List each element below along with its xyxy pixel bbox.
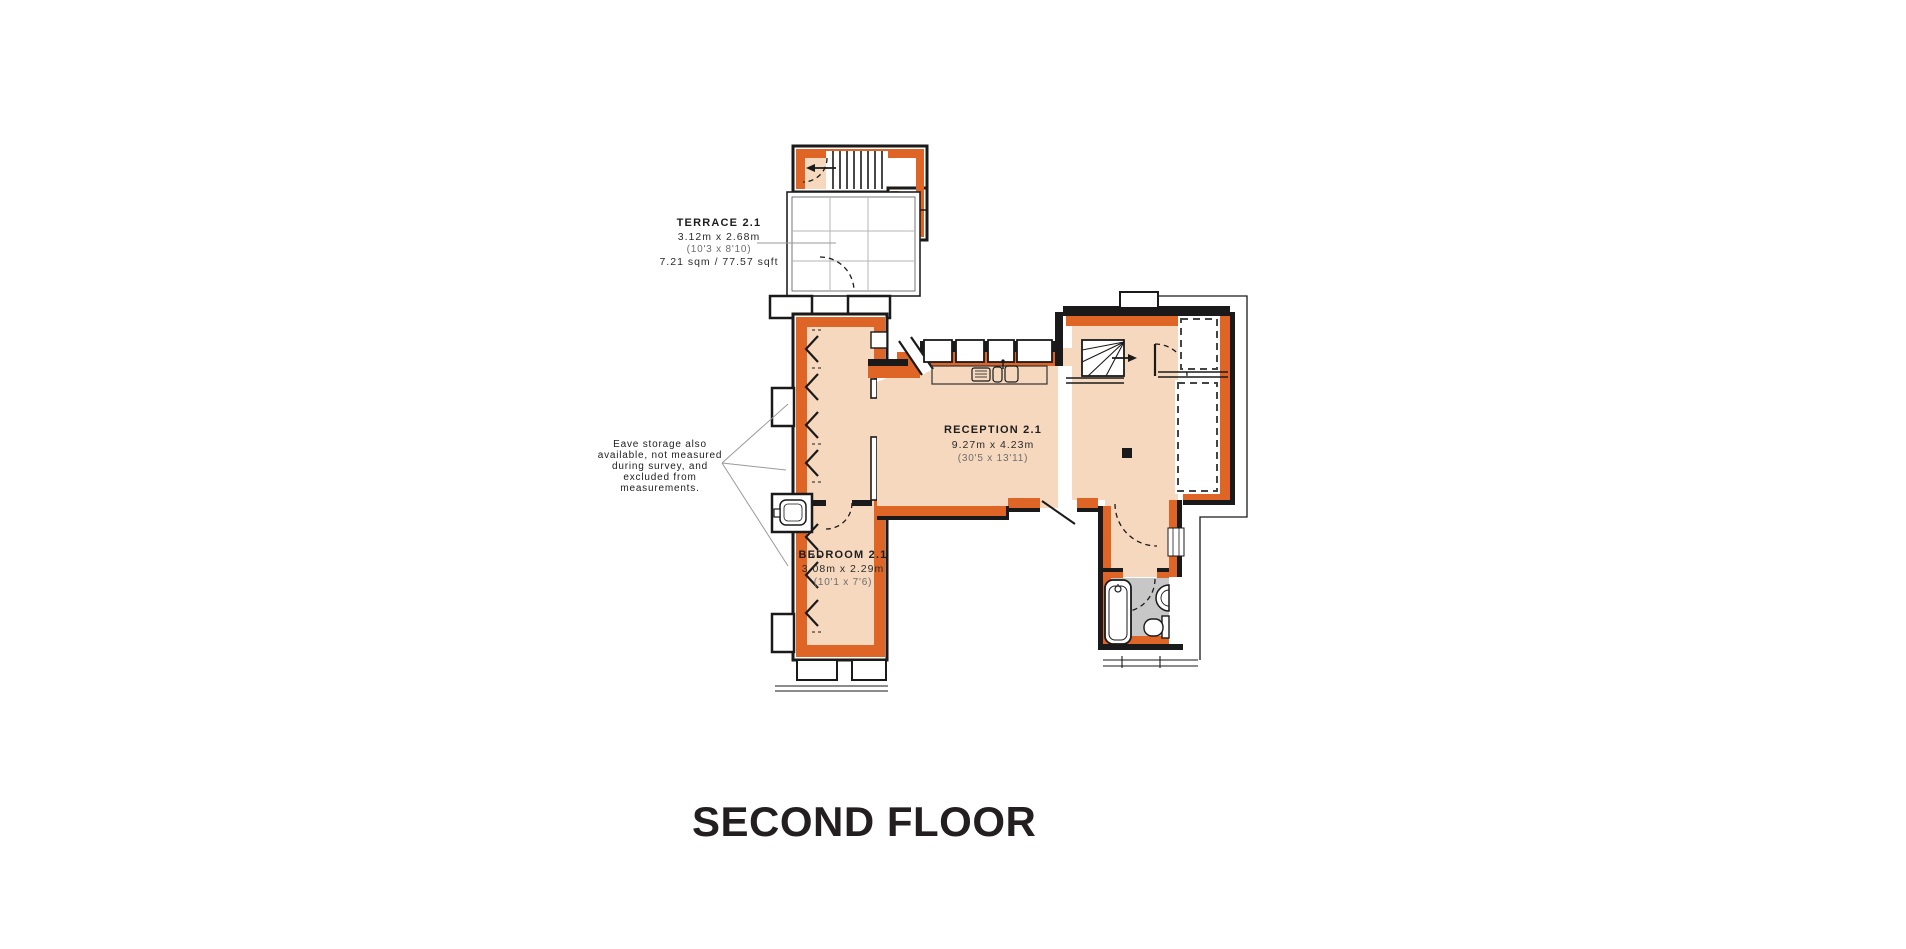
note-line: during survey, and (612, 461, 708, 472)
wall-buttress (1120, 292, 1158, 308)
note-line: Eave storage also (613, 439, 707, 450)
wall-buttress (852, 660, 886, 680)
reception-room: RECEPTION 2.1 9.27m x 4.23m (30'5 x 13'1… (868, 326, 1178, 577)
floorplan-canvas: RECEPTION 2.1 9.27m x 4.23m (30'5 x 13'1… (0, 0, 1906, 949)
room-dimensions-imperial: (10'1 x 7'6) (814, 577, 872, 588)
window (1168, 528, 1184, 556)
note-leader-lines (722, 404, 788, 566)
wall-buttress (772, 614, 794, 652)
window (924, 340, 952, 362)
eave-storage-zone (1178, 316, 1220, 372)
room-dimensions-metric: 3.08m x 2.29m (802, 563, 884, 575)
terrace-outline (787, 192, 920, 296)
room-dimensions-imperial: (30'5 x 13'11) (958, 453, 1028, 464)
eave-storage-zone (1175, 380, 1220, 494)
note-line: measurements. (620, 483, 699, 494)
stair-landing (805, 158, 826, 189)
hall-floor (1105, 500, 1177, 577)
window (956, 340, 984, 362)
note-line: available, not measured (598, 450, 723, 461)
note-line: excluded from (623, 472, 696, 483)
window (988, 340, 1014, 362)
window (871, 332, 887, 348)
washbasin-recess (772, 494, 812, 532)
reception-floor (877, 364, 1058, 508)
window-row (924, 340, 1052, 362)
structural-post (1122, 448, 1132, 458)
eave-storage-note: Eave storage also available, not measure… (598, 404, 788, 566)
reception-label: RECEPTION 2.1 9.27m x 4.23m (30'5 x 13'1… (944, 424, 1042, 464)
room-dimensions-metric: 9.27m x 4.23m (952, 439, 1034, 451)
terrace-room (787, 192, 920, 296)
door-leaf (1042, 501, 1075, 524)
floor-title: SECOND FLOOR (692, 798, 1036, 845)
room-dimensions-imperial: (10'3 x 8'10) (687, 244, 752, 255)
tap-icon (774, 509, 780, 517)
low-wall-outline (1103, 656, 1198, 668)
room-name: RECEPTION 2.1 (944, 424, 1042, 436)
room-name: BEDROOM 2.1 (799, 549, 888, 561)
floorplan-page: RECEPTION 2.1 9.27m x 4.23m (30'5 x 13'1… (0, 0, 1906, 949)
wall-buttress (772, 388, 794, 426)
bath-icon (1105, 580, 1131, 644)
wall-buttress (797, 660, 837, 680)
room-dimensions-metric: 3.12m x 2.68m (678, 231, 760, 243)
window (1017, 340, 1052, 362)
low-wall-outline (775, 686, 888, 691)
room-name: TERRACE 2.1 (677, 217, 762, 229)
bathroom (1098, 568, 1198, 668)
room-area: 7.21 sqm / 77.57 sqft (659, 256, 778, 268)
